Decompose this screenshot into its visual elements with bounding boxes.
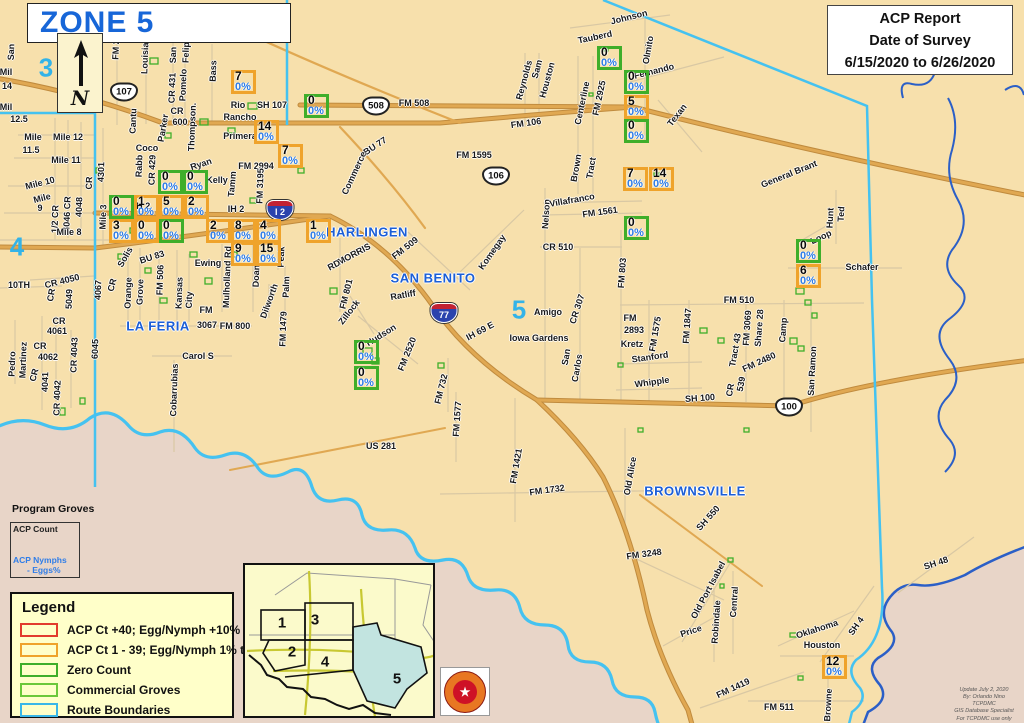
acp-survey-box: 00% xyxy=(624,216,649,240)
road-label: Palm xyxy=(281,276,292,298)
road-label: FM 1479 xyxy=(277,311,288,347)
road-label: CR xyxy=(171,106,184,116)
road-label: CR xyxy=(53,316,66,326)
legend-label: ACP Ct 1 - 39; Egg/Nymph 1% to 9% xyxy=(67,643,272,657)
road-label: Kretz xyxy=(621,339,644,349)
egg-nymph-percent: 0% xyxy=(163,207,181,217)
road-label: FM 800 xyxy=(220,321,251,331)
city-label: SAN BENITO xyxy=(391,271,476,286)
inset-zone-number: 1 xyxy=(278,615,286,632)
egg-nymph-percent: 0% xyxy=(138,231,156,241)
legend-swatch xyxy=(20,623,58,637)
road-label: CR 429 xyxy=(146,155,157,186)
road-label: 12.5 xyxy=(10,114,28,124)
zone-numeral: 5 xyxy=(512,295,526,326)
egg-nymph-percent: 0% xyxy=(163,231,181,241)
city-label: BROWNSVILLE xyxy=(644,484,746,499)
acp-survey-box: 10% xyxy=(134,195,159,219)
road-label: Bass xyxy=(208,60,219,82)
inset-zone-number: 4 xyxy=(321,654,329,671)
legend-swatch xyxy=(20,643,58,657)
road-label: Kelly xyxy=(206,175,228,185)
acp-survey-box: 70% xyxy=(278,144,303,168)
egg-nymph-percent: 0% xyxy=(258,132,276,142)
road-label: Camp xyxy=(777,317,789,343)
egg-nymph-percent: 0% xyxy=(260,254,278,264)
legend-title: Legend xyxy=(22,599,224,616)
road-label: CR 431 xyxy=(166,73,177,104)
acp-survey-box: 00% xyxy=(304,94,329,118)
road-label: 10TH xyxy=(8,280,30,290)
inset-zone-number: 5 xyxy=(393,671,401,688)
road-label: CR 4043 xyxy=(68,337,79,373)
acp-report-map: SanMil14Mil12.5MileMile 1211.5Mile 11Mil… xyxy=(0,0,1024,723)
road-label: 4048 xyxy=(74,197,85,217)
credit-line: Update July 2, 2020 xyxy=(942,687,1024,694)
road-label: Doan xyxy=(251,265,262,288)
road-label: Rio xyxy=(231,100,246,110)
legend-label: Route Boundaries xyxy=(67,703,170,717)
egg-nymph-percent: 0% xyxy=(282,156,300,166)
road-label: Central xyxy=(728,586,740,618)
legend-item: ACP Ct +40; Egg/Nymph +10% xyxy=(20,620,224,639)
egg-nymph-percent: 0% xyxy=(800,276,818,286)
road-label: FM 511 xyxy=(764,702,794,712)
road-label: Orange xyxy=(122,277,133,309)
egg-nymph-percent: 0% xyxy=(601,58,619,68)
road-label: Browne xyxy=(822,688,834,721)
road-label: Coco xyxy=(136,143,159,153)
road-label: Primera xyxy=(223,131,257,141)
egg-nymph-percent: 0% xyxy=(628,228,646,238)
acp-survey-box: 150% xyxy=(256,242,281,266)
acp-survey-box: 00% xyxy=(183,170,208,194)
report-title-box: ACP Report Date of Survey 6/15/2020 to 6… xyxy=(827,5,1013,75)
road-label: Rabb xyxy=(134,155,145,178)
legend-label: Zero Count xyxy=(67,663,131,677)
program-groves-title: Program Groves xyxy=(12,503,94,515)
road-label: SH 100 xyxy=(685,392,716,404)
egg-nymph-percent: 0% xyxy=(627,179,645,189)
road-label: Mil xyxy=(0,102,12,112)
north-arrow-icon xyxy=(59,38,103,90)
acp-survey-box: 00% xyxy=(134,219,159,243)
road-label: FM 1595 xyxy=(456,150,492,160)
road-label: CR xyxy=(84,176,94,189)
acp-survey-box: 140% xyxy=(254,120,279,144)
road-label: US 281 xyxy=(366,441,396,451)
road-label: San xyxy=(168,47,179,64)
road-label: Amigo xyxy=(534,307,562,317)
report-line1: ACP Report xyxy=(828,9,1012,31)
acp-survey-box: 20% xyxy=(206,219,231,243)
legend-item: Route Boundaries xyxy=(20,700,224,719)
report-line3: 6/15/2020 to 6/26/2020 xyxy=(828,53,1012,75)
acp-survey-box: 00% xyxy=(796,239,821,263)
acp-survey-box: 70% xyxy=(623,167,648,191)
road-label: Ted xyxy=(836,206,847,222)
road-label: 9 xyxy=(37,203,42,213)
egg-nymph-percent: 0% xyxy=(210,231,228,241)
road-label: Cantu xyxy=(128,108,139,134)
acp-survey-box: 50% xyxy=(624,95,649,119)
egg-nymph-percent: 0% xyxy=(138,207,156,217)
credit-line: TCPDMC xyxy=(942,701,1024,708)
legend-swatch xyxy=(20,663,58,677)
legend-swatch xyxy=(20,703,58,717)
legend-item: Commercial Groves xyxy=(20,680,224,699)
egg-nymph-percent: 0% xyxy=(310,231,328,241)
program-groves-sample: ACP Count ACP Nymphs - Eggs% xyxy=(10,522,80,578)
acp-survey-box: 60% xyxy=(796,264,821,288)
road-label: SH 107 xyxy=(257,100,287,110)
road-label: Mile 3 xyxy=(98,204,109,229)
road-label: Hunt xyxy=(824,208,835,229)
egg-nymph-percent: 0% xyxy=(187,182,205,192)
legend-label: ACP Ct +40; Egg/Nymph +10% xyxy=(67,623,240,637)
acp-survey-box: 00% xyxy=(624,119,649,143)
egg-nymph-percent: 0% xyxy=(260,231,278,241)
zone-numeral: 4 xyxy=(10,232,24,263)
road-label: CR 4042 xyxy=(51,380,62,416)
acp-survey-box: 70% xyxy=(231,70,256,94)
road-label: FM 803 xyxy=(616,257,628,288)
egg-nymph-percent: 0% xyxy=(188,207,206,217)
acp-survey-box: 120% xyxy=(822,655,847,679)
road-label: Mile 11 xyxy=(51,155,81,165)
legend-item: Zero Count xyxy=(20,660,224,679)
egg-nymph-percent: 0% xyxy=(628,82,646,92)
egg-nymph-percent: 0% xyxy=(162,182,180,192)
road-label: Mil xyxy=(0,67,12,77)
road-label: Grove xyxy=(135,279,146,305)
north-arrow: N xyxy=(57,33,103,113)
city-label: HARLINGEN xyxy=(326,225,408,240)
road-label: San xyxy=(6,44,17,61)
acp-survey-box: 90% xyxy=(231,242,256,266)
road-label: CR xyxy=(34,341,47,351)
legend-swatch xyxy=(20,683,58,697)
road-label: Ewing xyxy=(195,258,222,268)
road-label: 4041 xyxy=(40,372,51,392)
road-label: FM xyxy=(200,305,213,315)
road-label: CR 510 xyxy=(543,242,574,252)
road-label: Mile 12 xyxy=(53,132,83,142)
road-label: Cobarrubias xyxy=(168,363,180,416)
acp-survey-box: 00% xyxy=(109,195,134,219)
road-label: City xyxy=(184,291,195,308)
acp-survey-box: 20% xyxy=(184,195,209,219)
egg-nymph-percent: 0% xyxy=(358,352,376,362)
egg-nymph-percent: 0% xyxy=(113,207,131,217)
map-credits: Update July 2, 2020By: Orlando NinoTCPDM… xyxy=(942,687,1024,723)
road-label: 4301 xyxy=(96,162,107,182)
egg-nymph-percent: 0% xyxy=(235,82,253,92)
road-label: Iowa Gardens xyxy=(509,333,568,343)
credit-line: For TCPDMC use only xyxy=(942,716,1024,723)
acp-survey-box: 00% xyxy=(158,170,183,194)
inset-drawing xyxy=(245,565,433,716)
eggs-label: - Eggs% xyxy=(27,565,61,575)
acp-survey-box: 40% xyxy=(256,219,281,243)
logo-ring: ★ xyxy=(444,671,486,713)
road-label: FM 510 xyxy=(724,295,755,305)
legend: Legend ACP Ct +40; Egg/Nymph +10%ACP Ct … xyxy=(10,592,234,718)
road-label: 11.5 xyxy=(22,145,39,155)
acp-survey-box: 30% xyxy=(109,219,134,243)
legend-label: Commercial Groves xyxy=(67,683,180,697)
road-label: IH 2 xyxy=(228,204,245,214)
road-label: 4067 xyxy=(93,280,104,300)
road-label: 600 xyxy=(172,117,187,127)
road-label: Pedro xyxy=(7,351,18,377)
inset-zone5-shape xyxy=(353,623,427,708)
acp-nymphs-label: ACP Nymphs xyxy=(13,555,67,565)
road-label: Carol S xyxy=(182,351,214,361)
road-label: Martinez xyxy=(17,342,28,379)
road-label: 5049 xyxy=(64,289,75,309)
road-label: FM 508 xyxy=(399,98,430,108)
acp-survey-box: 140% xyxy=(649,167,674,191)
road-label: 2893 xyxy=(624,325,644,335)
report-line2: Date of Survey xyxy=(828,31,1012,53)
egg-nymph-percent: 0% xyxy=(653,179,671,189)
road-label: Rancho xyxy=(223,112,256,122)
egg-nymph-percent: 0% xyxy=(800,251,818,261)
road-label: Pomelo xyxy=(177,69,188,102)
credit-line: GIS Database Specialist xyxy=(942,708,1024,715)
acp-survey-box: 00% xyxy=(597,46,622,70)
egg-nymph-percent: 0% xyxy=(308,106,326,116)
city-label: LA FERIA xyxy=(126,319,189,334)
egg-nymph-percent: 0% xyxy=(358,378,376,388)
credit-line: By: Orlando Nino xyxy=(942,694,1024,701)
egg-nymph-percent: 0% xyxy=(628,131,646,141)
acp-survey-box: 80% xyxy=(231,219,256,243)
egg-nymph-percent: 0% xyxy=(235,254,253,264)
road-label: FM xyxy=(624,313,637,323)
road-label: 3067 xyxy=(197,320,217,330)
inset-zone-number: 3 xyxy=(311,612,319,629)
acp-survey-box: 50% xyxy=(159,195,184,219)
acp-count-label: ACP Count xyxy=(13,524,58,534)
road-label: 6045 xyxy=(90,339,101,359)
road-label: FM 3195 xyxy=(254,168,265,204)
egg-nymph-percent: 0% xyxy=(628,107,646,117)
acp-survey-box: 00% xyxy=(159,219,184,243)
road-label: 14 xyxy=(2,81,12,91)
road-label: 4062 xyxy=(38,352,58,362)
north-label: N xyxy=(71,86,89,110)
road-label: Mile 8 xyxy=(56,227,81,237)
egg-nymph-percent: 0% xyxy=(113,231,131,241)
logo-center-icon: ★ xyxy=(453,680,477,704)
overview-inset-map: 12345 xyxy=(243,563,435,718)
road-label: Thompson. xyxy=(186,103,198,152)
road-label: FM 506 xyxy=(154,265,165,296)
acp-survey-box: 00% xyxy=(354,340,379,364)
acp-survey-box: 00% xyxy=(354,366,379,390)
tcpdmc-logo: ★ xyxy=(440,667,490,716)
legend-item: ACP Ct 1 - 39; Egg/Nymph 1% to 9% xyxy=(20,640,224,659)
road-label: 4061 xyxy=(47,326,67,336)
zone-numeral: 3 xyxy=(39,53,53,84)
acp-survey-box: 00% xyxy=(624,70,649,94)
acp-survey-box: 10% xyxy=(306,219,331,243)
egg-nymph-percent: 0% xyxy=(826,667,844,677)
road-label: Houston xyxy=(804,640,841,650)
road-label: Schafer xyxy=(845,262,878,272)
road-label: Mile xyxy=(24,132,42,142)
inset-zone-number: 2 xyxy=(288,644,296,661)
egg-nymph-percent: 0% xyxy=(235,231,253,241)
